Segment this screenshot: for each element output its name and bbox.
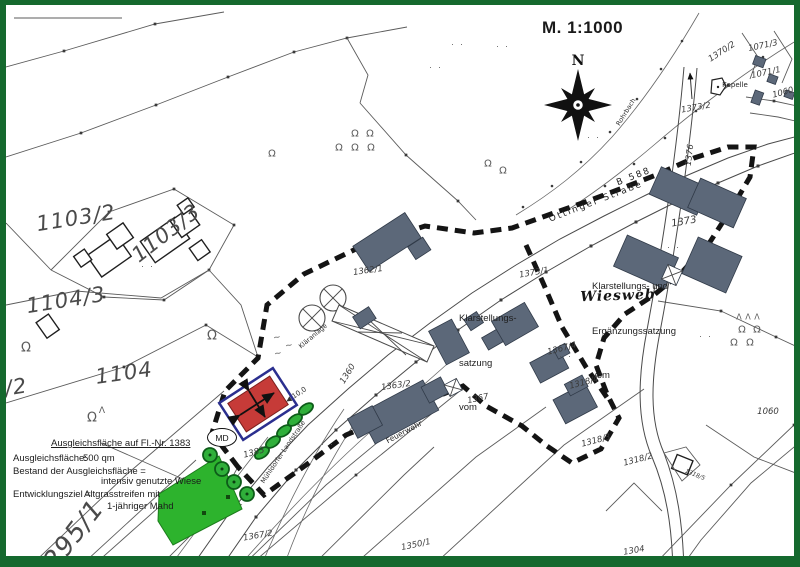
map-label: Ω (499, 166, 507, 177)
map-label: · · (667, 244, 681, 253)
scanned-site-plan: M. 1:1000 N Klarstellungs- satzung vom K… (0, 0, 800, 567)
map-label: ∼ (273, 348, 282, 359)
map-label: · · (321, 441, 335, 450)
map-label: Ω (21, 341, 31, 356)
map-label: · · (141, 263, 155, 272)
map-label: · · (699, 333, 713, 342)
map-label: Ω (753, 325, 761, 336)
map-label: Mühldorfer Landstraße (259, 419, 307, 485)
map-label: Ω (367, 143, 375, 154)
map-label: 1370/2 (707, 40, 738, 65)
map-label: 1304 (622, 544, 645, 558)
map-label: /2 (3, 373, 29, 400)
map-label: 1318/2 (622, 451, 653, 468)
map-label: · · (587, 134, 601, 143)
map-label: Ω (484, 159, 492, 170)
map-label: 1362/1 (352, 264, 383, 278)
map-label: 1318/4 (568, 374, 599, 391)
map-label: 1350/1 (400, 537, 431, 553)
map-label: Ω (738, 325, 746, 336)
map-label: Ω (87, 411, 97, 426)
map-label: Wiesweb (580, 287, 656, 306)
map-label: Ω (351, 143, 359, 154)
map-label: 1103/2 (35, 200, 118, 236)
map-label: 1060 (757, 407, 779, 417)
map-label: ∼ (272, 332, 281, 343)
map-label: Feuerwehr (384, 419, 423, 446)
map-label: 1363/2 (380, 379, 411, 393)
map-label: ◀ 10,0 (284, 385, 308, 404)
map-label: Ω (351, 129, 359, 140)
map-label: Λ (736, 313, 741, 322)
map-label: Ω (730, 338, 738, 349)
map-label: Kläranlage (297, 322, 329, 350)
map-label: ∼ (284, 340, 293, 351)
map-label: Rohrbach (614, 97, 637, 127)
map-label: Ω (268, 149, 276, 160)
map-label: 1060 (771, 85, 794, 100)
map-label: Ω (207, 329, 217, 344)
map-label: 1071/1 (750, 65, 781, 81)
map-label: Ω (335, 143, 343, 154)
map-label: 1103/3 (127, 199, 205, 267)
map-label: 1376 (684, 144, 697, 167)
map-label: 1367 (466, 392, 489, 406)
map-label: Ottinger Straße (548, 179, 645, 224)
map-label: 1360 (338, 362, 358, 386)
map-label: Λ (745, 313, 750, 322)
map-label: · · (429, 64, 443, 73)
map-label: 1318/3 (580, 432, 611, 449)
map-label: 1071/3 (747, 38, 778, 54)
map-label: Λ (754, 313, 759, 322)
map-label: 295/1 (38, 494, 111, 567)
label-layer: 1103/21103/31104/31104/2295/11362/113601… (6, 5, 794, 556)
map-label: 1318/5 (684, 468, 706, 482)
map-label: 1104/3 (25, 282, 108, 318)
map-label: 1367/2 (242, 528, 273, 543)
map-label: Ω (746, 338, 754, 349)
map-label: Kapelle (722, 81, 748, 89)
map-label: 1104 (94, 357, 154, 389)
map-label: 1373/2 (680, 100, 711, 115)
map-label: Ω (366, 129, 374, 140)
map-label: 1373/1 (518, 265, 549, 280)
map-label: · · (496, 43, 510, 52)
map-label: · · (559, 353, 573, 362)
map-label: · · (451, 41, 465, 50)
map-label: 1383 (242, 445, 265, 460)
map-label: 1373 (671, 214, 698, 229)
map-label: Λ (99, 406, 105, 416)
